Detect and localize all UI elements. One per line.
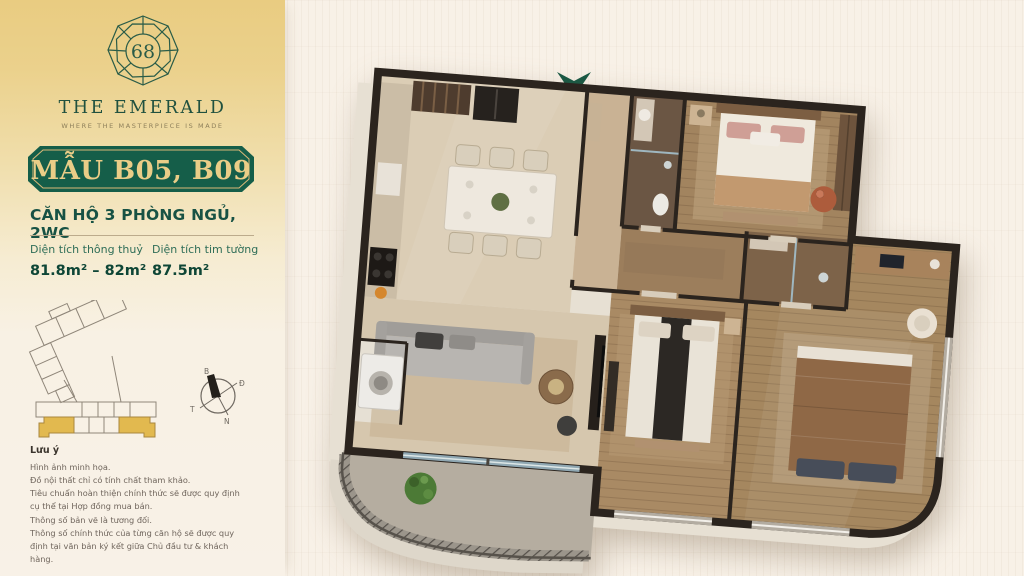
note-line: Thông số bản vẽ là tương đối. — [30, 514, 246, 527]
compass-north: B — [204, 367, 209, 376]
washing-machine — [358, 354, 404, 411]
compass-east: Đ — [239, 379, 245, 388]
divider — [30, 235, 254, 236]
unit-title: CĂN HỘ 3 PHÒNG NGỦ, 2WC — [30, 206, 262, 242]
highlighted-units — [39, 417, 155, 437]
brand-name: THE EMERALD — [0, 98, 285, 118]
area-gross: Diện tích tim tường 87.5m² — [152, 243, 262, 279]
diamond-logo-icon: 68 — [102, 12, 184, 92]
bedroom3 — [602, 303, 742, 465]
compass-needle — [207, 374, 221, 398]
area-net-label: Diện tích thông thuỷ — [30, 243, 148, 256]
disclaimer-notes: Lưu ý Hình ảnh minh họa. Đồ nội thất chỉ… — [30, 445, 246, 566]
floorplan-3d-render — [300, 64, 1024, 576]
info-panel: 68 THE EMERALD WHERE THE MASTERPIECE IS … — [0, 0, 285, 576]
area-gross-label: Diện tích tim tường — [152, 243, 262, 256]
brand-logo: 68 THE EMERALD WHERE THE MASTERPIECE IS … — [0, 12, 285, 130]
site-plan-minimap — [22, 300, 182, 440]
note-line: Hình ảnh minh họa. — [30, 461, 246, 474]
note-line: Tiêu chuẩn hoàn thiện chính thức sẽ được… — [30, 487, 246, 513]
brand-tagline: WHERE THE MASTERPIECE IS MADE — [0, 122, 285, 130]
area-net: Diện tích thông thuỷ 81.8m² – 82m² — [30, 243, 148, 279]
compass-west: T — [189, 405, 195, 414]
brochure-page: 68 THE EMERALD WHERE THE MASTERPIECE IS … — [0, 0, 1024, 576]
shoe-cabinet — [585, 103, 602, 142]
area-gross-value: 87.5m² — [152, 263, 262, 279]
logo-number: 68 — [130, 41, 154, 63]
model-badge: MẪU B05, B09 — [28, 146, 254, 192]
dining-table — [442, 144, 558, 260]
note-line: Đồ nội thất chỉ có tính chất tham khảo. — [30, 474, 246, 487]
notes-title: Lưu ý — [30, 445, 246, 456]
model-badge-label: MẪU B05, B09 — [30, 150, 251, 186]
note-line: Thông số chính thức của từng căn hộ sẽ đ… — [30, 527, 246, 566]
area-net-value: 81.8m² – 82m² — [30, 263, 148, 279]
compass-south: N — [224, 417, 230, 426]
compass-icon: B Đ T N — [188, 366, 252, 426]
